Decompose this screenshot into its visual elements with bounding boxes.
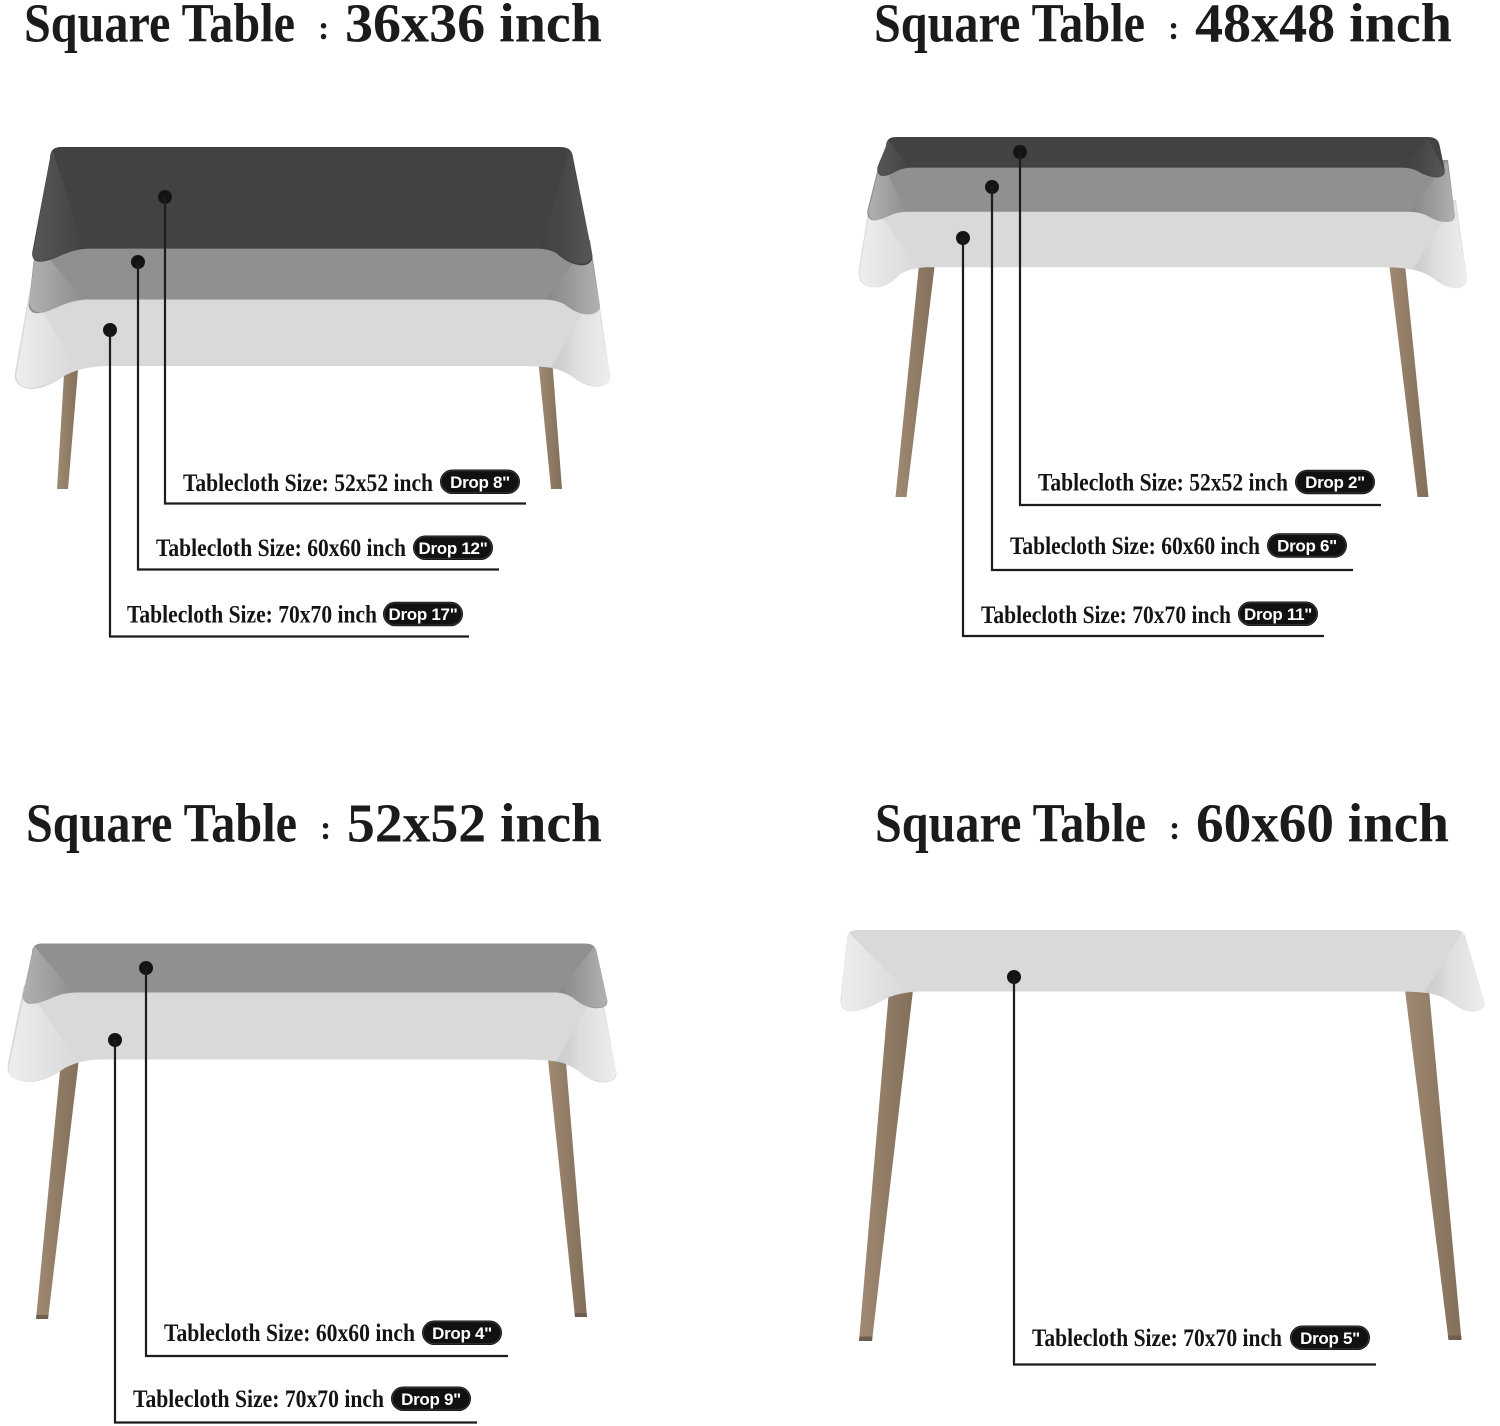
svg-text::: :	[1169, 810, 1180, 847]
svg-text:Drop 11": Drop 11"	[1244, 605, 1312, 624]
svg-text:Drop 12": Drop 12"	[419, 539, 488, 558]
svg-text:Tablecloth Size: 70x70 inch: Tablecloth Size: 70x70 inch	[133, 1386, 384, 1413]
svg-text::: :	[1168, 10, 1179, 47]
svg-text:Drop 17": Drop 17"	[389, 605, 458, 624]
svg-text:Tablecloth Size: 60x60 inch: Tablecloth Size: 60x60 inch	[164, 1320, 415, 1347]
svg-text:Tablecloth Size: 60x60 inch: Tablecloth Size: 60x60 inch	[156, 535, 406, 562]
svg-text:Square Table: Square Table	[874, 0, 1145, 55]
svg-text:Square Table: Square Table	[26, 794, 297, 855]
svg-text:Drop 8": Drop 8"	[450, 473, 510, 492]
svg-text:Square Table: Square Table	[875, 794, 1146, 855]
svg-text:Square Table: Square Table	[24, 0, 295, 55]
svg-text:60x60 inch: 60x60 inch	[1196, 794, 1449, 855]
svg-text:Drop 2": Drop 2"	[1305, 473, 1365, 492]
svg-text:Tablecloth Size: 60x60 inch: Tablecloth Size: 60x60 inch	[1010, 533, 1260, 560]
svg-text:Tablecloth Size: 70x70 inch: Tablecloth Size: 70x70 inch	[1032, 1325, 1282, 1352]
svg-text:Drop 6": Drop 6"	[1277, 537, 1337, 556]
svg-text::: :	[320, 810, 331, 847]
svg-text:Drop 9": Drop 9"	[401, 1390, 461, 1409]
svg-text:Tablecloth Size: 52x52 inch: Tablecloth Size: 52x52 inch	[183, 470, 433, 497]
svg-text:52x52 inch: 52x52 inch	[347, 794, 602, 855]
svg-text::: :	[318, 10, 329, 47]
svg-text:Tablecloth Size: 52x52 inch: Tablecloth Size: 52x52 inch	[1038, 470, 1288, 497]
svg-text:Tablecloth Size: 70x70 inch: Tablecloth Size: 70x70 inch	[981, 602, 1231, 629]
svg-text:Tablecloth Size: 70x70 inch: Tablecloth Size: 70x70 inch	[127, 602, 377, 629]
svg-text:36x36 inch: 36x36 inch	[345, 0, 602, 55]
svg-text:Drop 5": Drop 5"	[1300, 1329, 1360, 1348]
svg-text:Drop 4": Drop 4"	[432, 1324, 492, 1343]
svg-text:48x48 inch: 48x48 inch	[1195, 0, 1452, 55]
